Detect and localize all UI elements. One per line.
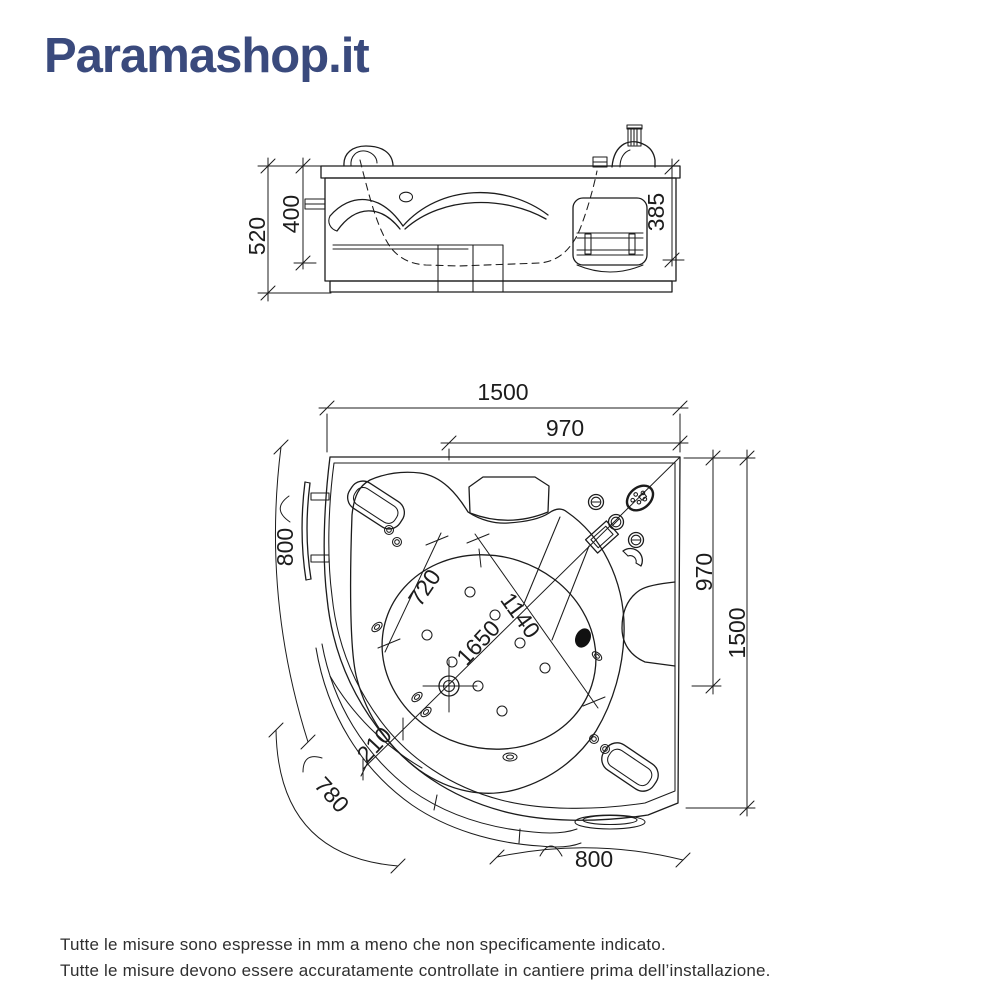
knob-1: [589, 495, 604, 510]
plan-view: 720 1140 1650 210 1500 970 970 1500: [269, 379, 755, 873]
dim-arc-left: 800: [272, 528, 298, 566]
dim-width-corner: 970: [546, 415, 584, 441]
headrest-side-inner: [351, 151, 377, 166]
dim-diagonal: 1650: [451, 615, 505, 670]
plan-right-dimensions: 970 1500: [684, 450, 755, 816]
measurement-disclaimer: Tutte le misure sono espresse in mm a me…: [60, 932, 771, 984]
disclaimer-line-2: Tutte le misure devono essere accuratame…: [60, 958, 771, 984]
elevation-dimensions: 520 400 385: [244, 158, 684, 301]
plan-top-dimensions: 1500 970: [319, 379, 688, 460]
deck-outline: [324, 457, 680, 820]
dim-width-total: 1500: [477, 379, 528, 405]
disclaimer-line-1: Tutte le misure sono espresse in mm a me…: [60, 932, 771, 958]
control-panel-side: [573, 198, 647, 272]
dim-elevation-right-height: 385: [643, 193, 669, 231]
pipe-fitting-side: [305, 199, 325, 209]
apron-panel-lines: [333, 245, 503, 292]
side-seat: [622, 582, 675, 666]
dim-height-total: 1500: [724, 607, 750, 658]
dim-basin-length: 720: [403, 564, 446, 610]
product-drawing-page: Paramashop.it: [0, 0, 1000, 1000]
elevation-view: 520 400 385: [244, 125, 684, 301]
knob-3: [629, 533, 644, 548]
overflow-fitting: [623, 548, 642, 566]
tub-rim-side: [321, 166, 680, 178]
foot-detail: [575, 815, 645, 829]
plan-diagonal-dimensions: 720 1140 1650 210: [352, 457, 680, 780]
technical-drawing: 520 400 385: [0, 0, 1000, 1000]
faucet-side: [593, 125, 655, 167]
dim-height-corner: 970: [691, 553, 717, 591]
hidden-contour-dashed: [360, 160, 597, 266]
interior-contours: [329, 192, 548, 231]
tub-base-side: [330, 281, 672, 292]
controls-cluster: [586, 481, 658, 566]
dim-elevation-inner-height: 400: [278, 195, 304, 233]
dim-rim-offset: 210: [352, 722, 397, 768]
mixer-control: [622, 481, 658, 516]
pillow-top-left: [343, 476, 410, 534]
dim-arc-bottom: 800: [575, 846, 613, 872]
dim-elevation-total-height: 520: [244, 217, 270, 255]
pillow-bottom-right: [597, 738, 664, 796]
dim-arc-corner: 780: [309, 772, 354, 818]
knob-2: [609, 515, 624, 530]
backrest-seat: [469, 477, 549, 520]
